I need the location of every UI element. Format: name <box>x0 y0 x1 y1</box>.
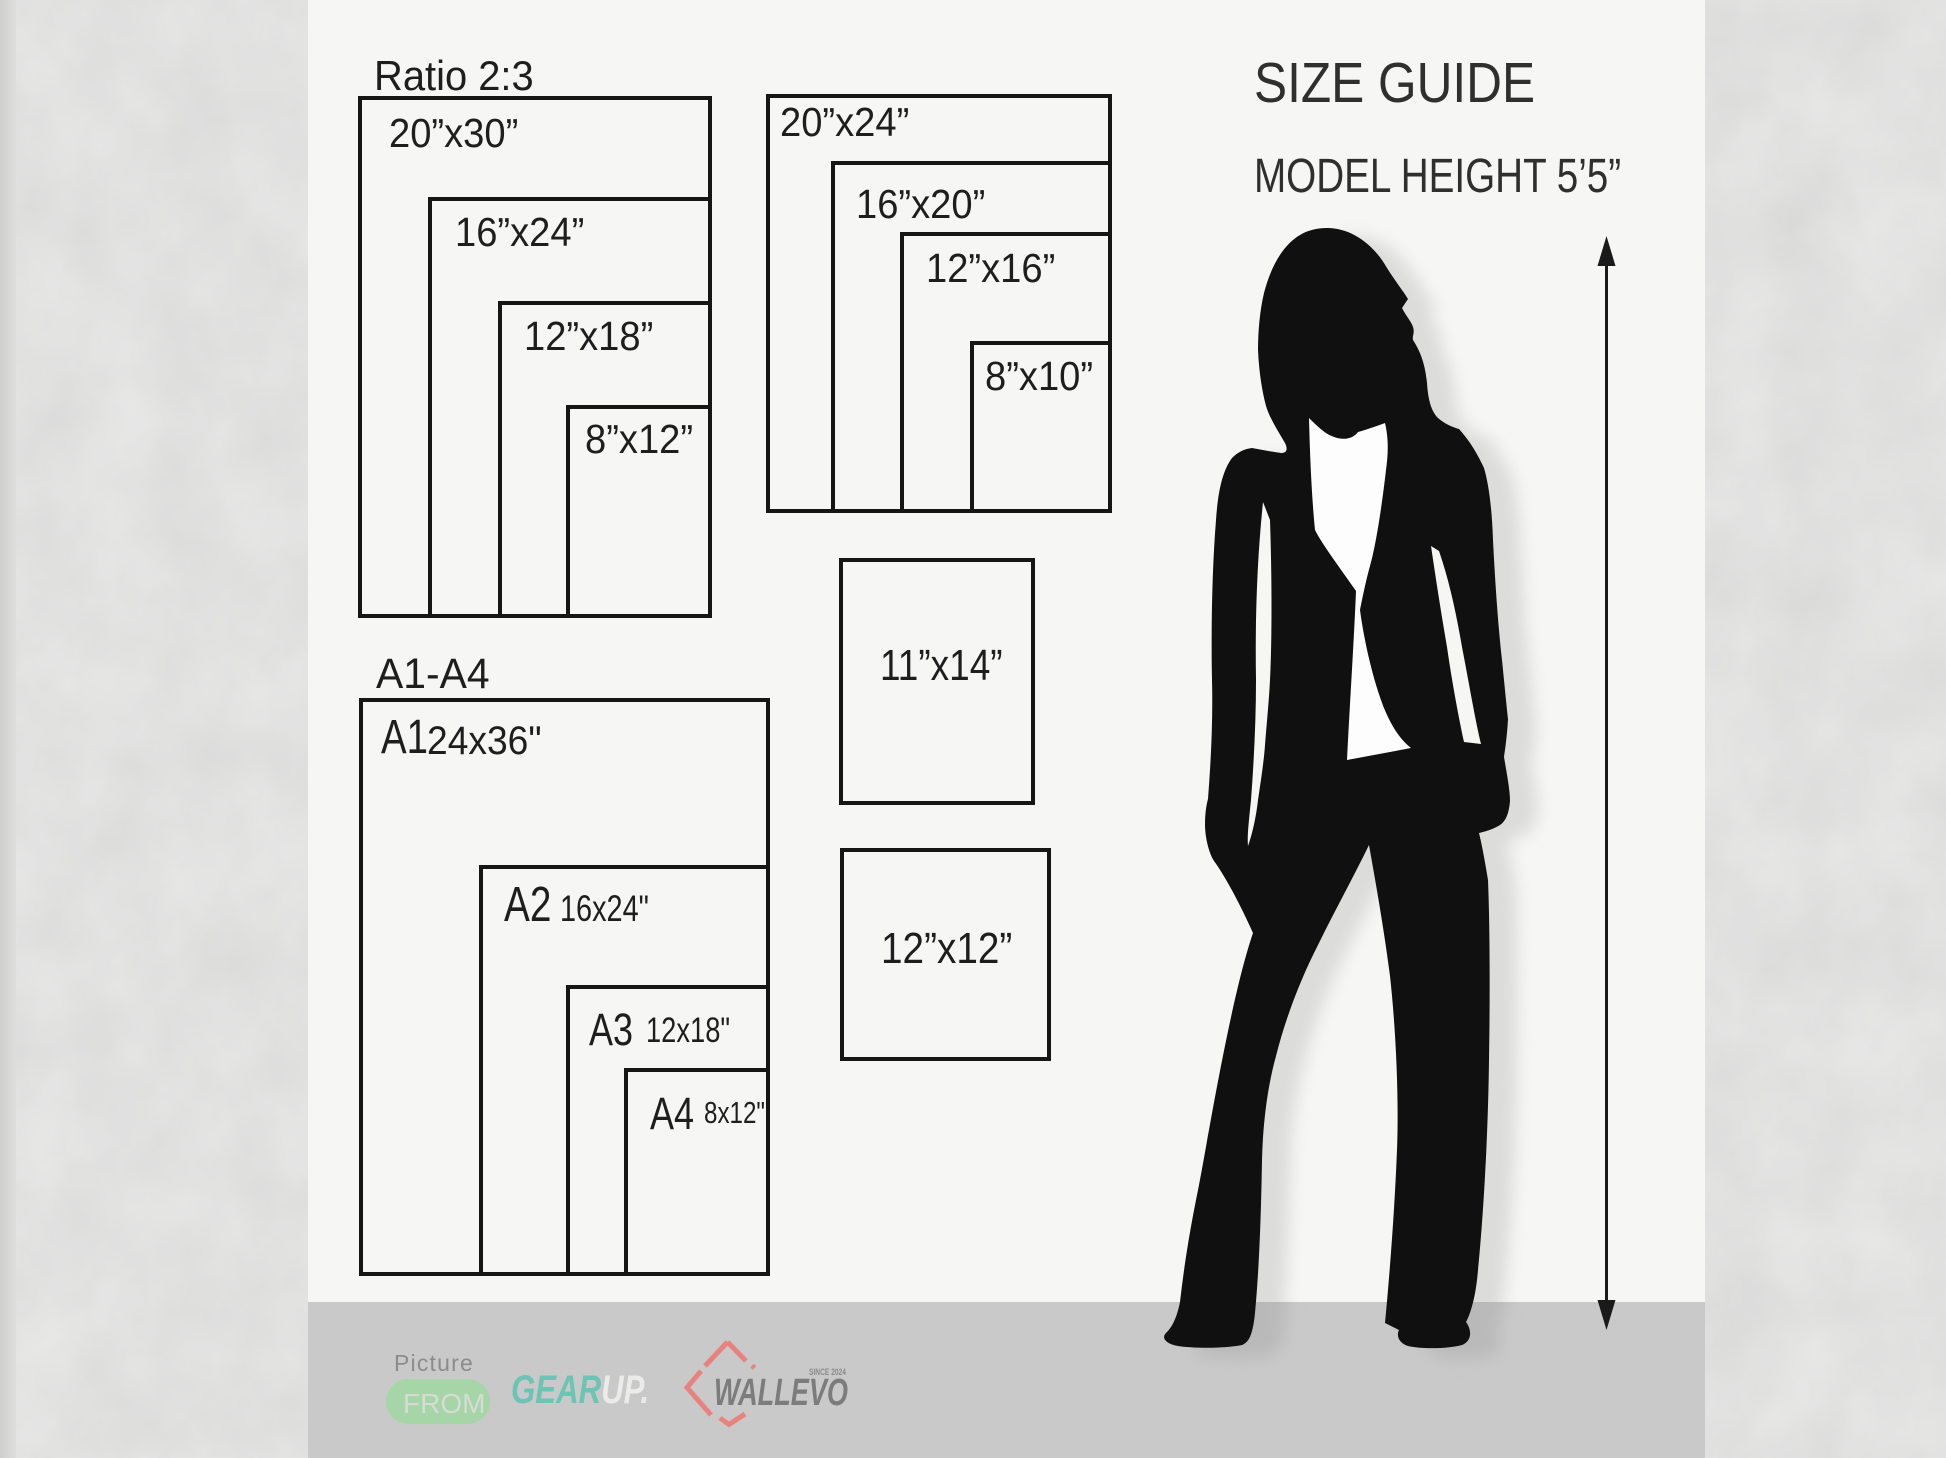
svg-text:WALLEVO: WALLEVO <box>714 1372 848 1414</box>
